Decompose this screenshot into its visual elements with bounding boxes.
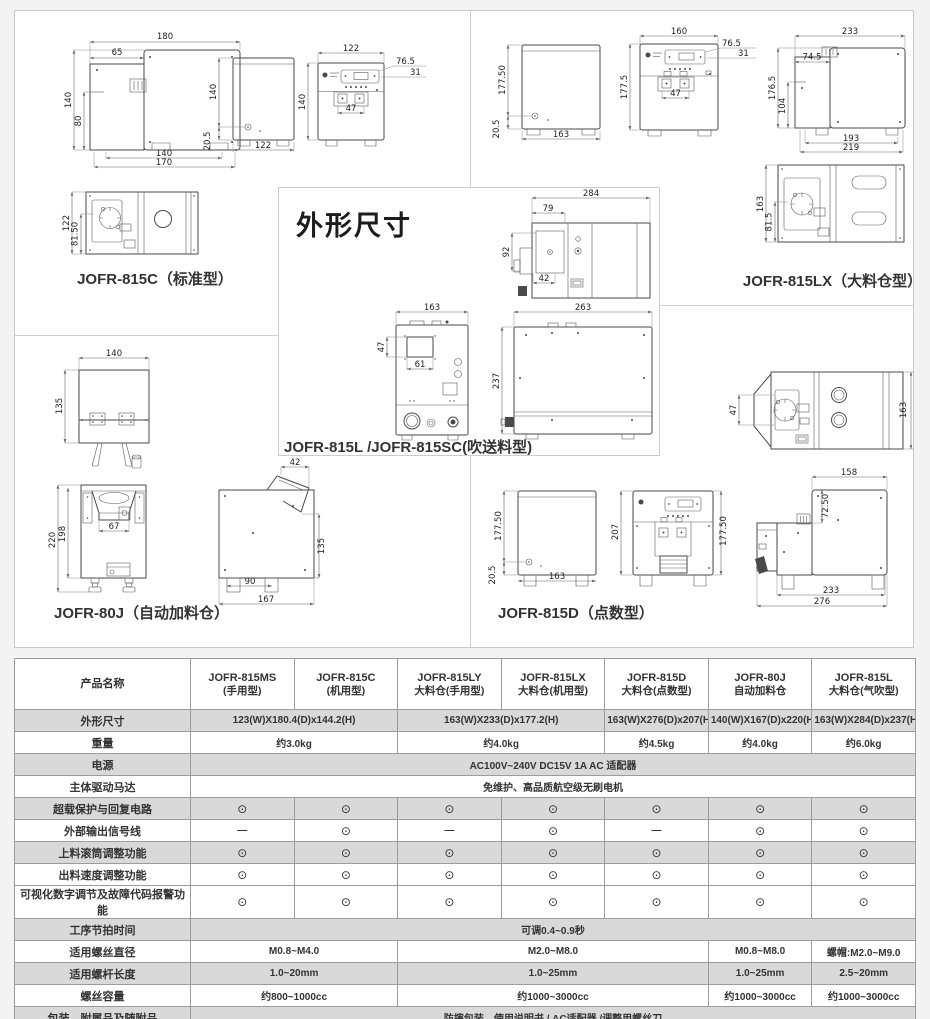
- spec-row-label: 外形尺寸: [15, 710, 191, 732]
- spec-cell: ⊙: [708, 820, 812, 842]
- dim-label: 104: [778, 98, 788, 114]
- spec-cell: ⊙: [708, 864, 812, 886]
- spec-cell: ⊙: [812, 864, 916, 886]
- dim-label: 31: [410, 68, 421, 78]
- spec-cell: ⊙: [294, 820, 398, 842]
- spec-col-header: JOFR-80J自动加料仓: [708, 659, 812, 710]
- spec-col-header-line1: JOFR-815C: [297, 671, 396, 685]
- spec-row-label: 外部输出信号线: [15, 820, 191, 842]
- spec-row-label: 电源: [15, 754, 191, 776]
- drawing-80j-top-view: 140 135: [48, 350, 176, 472]
- spec-cell: 2.5~20mm: [812, 963, 916, 985]
- dim-label: 160: [671, 27, 687, 37]
- dim-label: 163: [553, 130, 569, 140]
- spec-row-label: 包装、附属品及随附品: [15, 1007, 191, 1019]
- dim-label: 72.50: [821, 494, 831, 518]
- model-label-815d: JOFR-815D（点数型）: [498, 602, 654, 623]
- drawing-815d-rear-view: 177.50 20.5 163: [488, 476, 606, 594]
- dim-label: 42: [290, 458, 301, 468]
- model-label-80j: JOFR-80J（自动加料仓）: [54, 602, 229, 623]
- dim-label: 233: [823, 586, 839, 596]
- spec-cell: ⊙: [605, 842, 709, 864]
- spec-cell: M0.8~M4.0: [191, 941, 398, 963]
- drawing-815lx-side-view: 233 74.5 176.5 104 193 219: [758, 26, 928, 158]
- spec-row-label: 出料速度调整功能: [15, 864, 191, 886]
- spec-cell: ⊙: [398, 798, 502, 820]
- spec-cell: ⊙: [708, 886, 812, 919]
- spec-cell: ⊙: [812, 842, 916, 864]
- dim-label: 31: [738, 49, 749, 59]
- spec-cell: 140(W)X167(D)x220(H): [708, 710, 812, 732]
- spec-cell: 约1000~3000cc: [398, 985, 709, 1007]
- spec-cell: ⊙: [191, 842, 295, 864]
- model-label-815l: JOFR-815L /JOFR-815SC(吹送料型): [284, 436, 532, 457]
- spec-col-header-line1: JOFR-815LX: [504, 671, 603, 685]
- spec-cell: ⊙: [812, 820, 916, 842]
- spec-row-label: 适用螺杆长度: [15, 963, 191, 985]
- dim-label: 198: [58, 526, 68, 542]
- dim-label: 81.50: [71, 222, 81, 246]
- spec-cell: 螺帽:M2.0~M9.0: [812, 941, 916, 963]
- dim-label: 263: [575, 303, 591, 313]
- spec-cell: 163(W)X233(D)x177.2(H): [398, 710, 605, 732]
- spec-cell: 可调0.4~0.9秒: [191, 919, 916, 941]
- dim-label: 74.5: [803, 53, 822, 63]
- drawing-815l-front-view: 163 47 61: [372, 298, 490, 450]
- dim-label: 135: [55, 398, 65, 414]
- section-title: 外形尺寸: [296, 204, 412, 243]
- spec-col-header-line1: JOFR-815L: [814, 671, 913, 685]
- dim-label: 220: [48, 532, 58, 548]
- spec-cell: ⊙: [398, 886, 502, 919]
- spec-cell: 约800~1000cc: [191, 985, 398, 1007]
- dim-label: 219: [843, 143, 859, 153]
- spec-col-header: JOFR-815LX大料仓(机用型): [501, 659, 605, 710]
- model-label-815c: JOFR-815C（标准型）: [60, 268, 250, 289]
- dim-label: 207: [611, 524, 621, 540]
- spec-cell: 1.0~25mm: [708, 963, 812, 985]
- spec-cell: 约3.0kg: [191, 732, 398, 754]
- spec-col-header-line2: 大料仓(气吹型): [814, 685, 913, 698]
- drawing-815c-top-view: 122 81.50: [60, 182, 208, 266]
- spec-col-header-line1: JOFR-815D: [607, 671, 706, 685]
- spec-row-label: 适用螺丝直径: [15, 941, 191, 963]
- spec-col-header-line2: (手用型): [193, 685, 292, 698]
- dim-label: 81.5: [765, 213, 775, 232]
- dim-label: 92: [502, 247, 512, 258]
- spec-cell: ⊙: [812, 798, 916, 820]
- spec-cell: —: [605, 820, 709, 842]
- spec-col-product-name: 产品名称: [15, 659, 191, 710]
- spec-col-header: JOFR-815D大料仓(点数型): [605, 659, 709, 710]
- spec-cell: ⊙: [294, 842, 398, 864]
- dim-label: 177.5: [620, 75, 630, 99]
- spec-col-header-line2: (机用型): [297, 685, 396, 698]
- spec-cell: 1.0~20mm: [191, 963, 398, 985]
- spec-col-header-line1: JOFR-80J: [711, 671, 810, 685]
- dim-label: 61: [415, 360, 426, 370]
- dim-label: 122: [343, 44, 359, 54]
- spec-row-label: 螺丝容量: [15, 985, 191, 1007]
- spec-cell: 123(W)X180.4(D)x144.2(H): [191, 710, 398, 732]
- spec-col-header: JOFR-815C(机用型): [294, 659, 398, 710]
- drawing-815d-front-view: 207 177.50: [608, 476, 746, 594]
- spec-cell: 约4.0kg: [398, 732, 605, 754]
- spec-cell: ⊙: [294, 864, 398, 886]
- spec-cell: 163(W)X284(D)x237(H): [812, 710, 916, 732]
- spec-col-header-line1: 产品名称: [17, 677, 188, 691]
- spec-cell: AC100V~240V DC15V 1A AC 适配器: [191, 754, 916, 776]
- dim-label: 47: [377, 342, 387, 353]
- spec-cell: ⊙: [191, 886, 295, 919]
- spec-cell: 防摔包装、使用说明书 / AC适配器 /调整用螺丝刀: [191, 1007, 916, 1019]
- spec-cell: 约1000~3000cc: [708, 985, 812, 1007]
- spec-cell: ⊙: [501, 820, 605, 842]
- spec-col-header-line1: JOFR-815MS: [193, 671, 292, 685]
- spec-row-label: 上料滚筒调整功能: [15, 842, 191, 864]
- dim-label: 122: [255, 141, 271, 151]
- spec-cell: 免维护、高品质航空级无刷电机: [191, 776, 916, 798]
- drawing-815l-top-view: 284 79 92 42: [500, 186, 660, 304]
- dim-label: 140: [209, 84, 219, 100]
- spec-cell: ⊙: [605, 886, 709, 919]
- spec-row-label: 主体驱动马达: [15, 776, 191, 798]
- spec-cell: ⊙: [501, 864, 605, 886]
- dim-label: 67: [109, 522, 120, 532]
- drawing-815c-rear-view: 140 20.5 122: [205, 45, 305, 160]
- spec-col-header-line1: JOFR-815LY: [400, 671, 499, 685]
- dim-label: 163: [424, 303, 440, 313]
- spec-cell: 163(W)X276(D)x207(H): [605, 710, 709, 732]
- dim-label: 163: [756, 196, 766, 212]
- spec-cell: ⊙: [812, 886, 916, 919]
- spec-cell: ⊙: [398, 842, 502, 864]
- spec-col-header-line2: 大料仓(点数型): [607, 685, 706, 698]
- spec-cell: ⊙: [605, 864, 709, 886]
- drawing-815l-side-view: 263 237: [492, 298, 662, 450]
- dim-label: 79: [543, 204, 554, 214]
- spec-cell: ⊙: [191, 864, 295, 886]
- spec-cell: 约4.5kg: [605, 732, 709, 754]
- spec-row-label: 重量: [15, 732, 191, 754]
- dim-label: 170: [156, 158, 172, 168]
- dim-label: 233: [842, 27, 858, 37]
- spec-cell: ⊙: [191, 798, 295, 820]
- spec-col-header-line2: 大料仓(机用型): [504, 685, 603, 698]
- spec-cell: 约6.0kg: [812, 732, 916, 754]
- drawing-815c-front-view: 47 122 140 76.5 31: [298, 45, 430, 160]
- spec-row-label: 工序节拍时间: [15, 919, 191, 941]
- spec-cell: ⊙: [605, 798, 709, 820]
- dim-label: 140: [64, 92, 74, 108]
- spec-cell: —: [398, 820, 502, 842]
- spec-col-header: JOFR-815MS(手用型): [191, 659, 295, 710]
- dim-label: 65: [112, 48, 123, 58]
- dim-label: 76.5: [396, 57, 415, 67]
- dim-label: 180: [157, 32, 173, 42]
- spec-cell: ⊙: [398, 864, 502, 886]
- spec-cell: ⊙: [708, 798, 812, 820]
- spec-cell: ⊙: [294, 886, 398, 919]
- dim-label: 76.5: [722, 39, 741, 49]
- drawing-815lx-front-view: 160 177.5 76.5 31 47: [618, 28, 760, 148]
- drawing-815d-top-view: 47 163: [718, 352, 923, 460]
- dim-label: 20.5: [492, 120, 502, 139]
- dim-label: 42: [539, 274, 550, 284]
- spec-row-label: 可视化数字调节及故障代码报警功能: [15, 886, 191, 919]
- dim-label: 176.5: [768, 76, 778, 100]
- dim-label: 140: [298, 94, 308, 110]
- spec-cell: 约1000~3000cc: [812, 985, 916, 1007]
- spec-cell: ⊙: [708, 842, 812, 864]
- spec-col-header: JOFR-815L大料仓(气吹型): [812, 659, 916, 710]
- drawing-80j-front-view: 67 220 198: [40, 468, 164, 610]
- dim-label: 163: [549, 572, 565, 582]
- spec-cell: ⊙: [501, 798, 605, 820]
- dim-label: 163: [899, 402, 909, 418]
- drawing-815d-side-view: 158 72.50 233 276: [738, 460, 928, 620]
- drawing-815lx-top-view: 163 81.5: [756, 156, 928, 256]
- dim-label: 90: [245, 577, 256, 587]
- dim-label: 20.5: [203, 132, 213, 151]
- spec-cell: M0.8~M8.0: [708, 941, 812, 963]
- spec-cell: ⊙: [501, 886, 605, 919]
- spec-col-header-line2: 大料仓(手用型): [400, 685, 499, 698]
- drawing-815lx-rear-view: 177.50 20.5 163: [495, 33, 607, 148]
- spec-cell: M2.0~M8.0: [398, 941, 709, 963]
- spec-col-header-line2: 自动加料仓: [711, 685, 810, 698]
- spec-cell: —: [191, 820, 295, 842]
- dim-label: 47: [729, 405, 739, 416]
- dim-label: 177.50: [719, 516, 729, 546]
- spec-col-header: JOFR-815LY大料仓(手用型): [398, 659, 502, 710]
- dim-label: 158: [841, 468, 857, 478]
- dim-label: 237: [492, 373, 502, 389]
- spec-cell: 1.0~25mm: [398, 963, 709, 985]
- dim-label: 135: [317, 538, 327, 554]
- dim-label: 167: [258, 595, 274, 605]
- dim-label: 20.5: [488, 566, 498, 585]
- dim-label: 80: [74, 116, 84, 127]
- dim-label: 140: [106, 349, 122, 359]
- spec-sheet-page: 外形尺寸 180 65 140 80 140 170 140 20.5 122: [0, 0, 930, 1019]
- drawing-80j-side-view: 42 135 90 167: [205, 458, 343, 616]
- dim-label: 284: [583, 189, 599, 199]
- spec-cell: ⊙: [501, 842, 605, 864]
- dim-label: 177.50: [494, 511, 504, 541]
- dim-label: 47: [346, 104, 357, 114]
- spec-row-label: 超载保护与回复电路: [15, 798, 191, 820]
- spec-cell: 约4.0kg: [708, 732, 812, 754]
- dim-label: 177.50: [498, 65, 508, 95]
- dim-label: 47: [670, 89, 681, 99]
- spec-table: 产品名称JOFR-815MS(手用型)JOFR-815C(机用型)JOFR-81…: [14, 658, 916, 1019]
- model-label-815lx: JOFR-815LX（大料仓型）: [740, 270, 925, 291]
- dim-label: 276: [814, 597, 830, 607]
- spec-cell: ⊙: [294, 798, 398, 820]
